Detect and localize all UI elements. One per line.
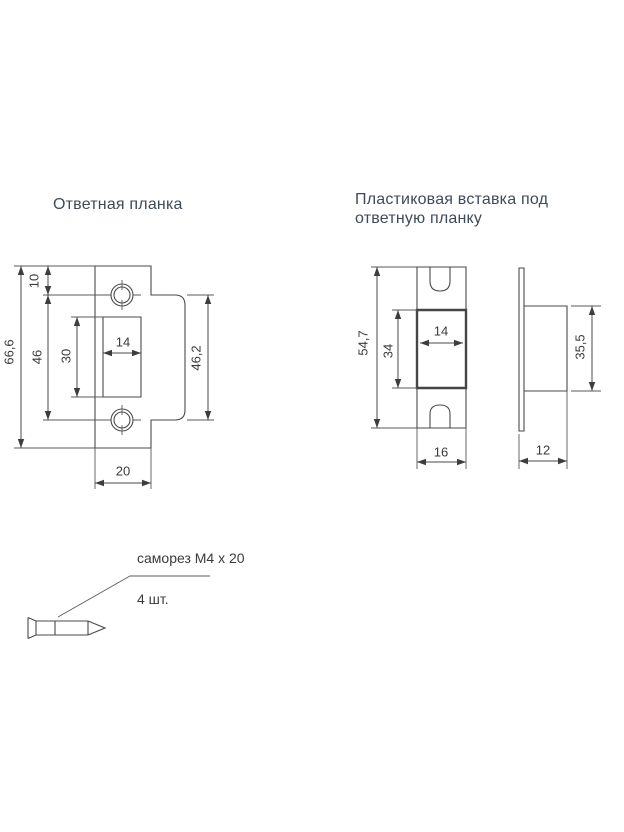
dim-plate-top-hole-offset: 10 [27,274,42,288]
dimension-lines [18,266,595,486]
dim-insert-width: 16 [434,445,448,460]
dim-plate-cutout-width: 14 [116,335,130,350]
dim-insert-side-height: 35,5 [573,334,588,359]
hole-center-marks [122,280,141,435]
dim-plate-overall-height: 66,6 [2,339,17,364]
dim-insert-opening-height: 34 [381,344,396,358]
screw-quantity: 4 шт. [137,591,169,607]
insert-opening-band [417,310,466,388]
strike-plate-drawing [14,266,214,489]
dim-insert-height: 54,7 [356,330,371,355]
screw-label: саморез M4 x 20 [137,550,245,566]
dim-plate-cutout-height: 30 [59,349,74,363]
insert-side-flange [519,268,524,431]
insert-title: Пластиковая вставка под ответную планку [355,191,560,228]
drawing-sheet: Ответная планка Пластиковая вставка под … [0,0,624,832]
insert-top-slot [430,267,450,291]
dim-plate-tab-height: 46,2 [189,345,204,370]
dim-plate-hole-spacing: 46 [30,350,45,364]
insert-bottom-dome [430,405,450,428]
insert-side-extension-lines [519,306,601,469]
dim-insert-depth: 12 [536,443,550,458]
strike-plate-outline [95,266,185,448]
insert-front-drawing [371,267,466,469]
dim-plate-width: 20 [116,464,130,479]
screw-drawing [28,576,210,639]
insert-front-extension-lines [371,267,466,469]
technical-drawing-svg [0,0,624,832]
latch-cutout [103,317,141,397]
screw-outline [28,618,105,639]
strike-plate-title: Ответная планка [53,196,233,215]
screw-leader-line [58,576,210,617]
dim-insert-opening-width: 14 [434,324,448,339]
insert-side-body [524,306,567,391]
insert-side-drawing [519,268,601,469]
